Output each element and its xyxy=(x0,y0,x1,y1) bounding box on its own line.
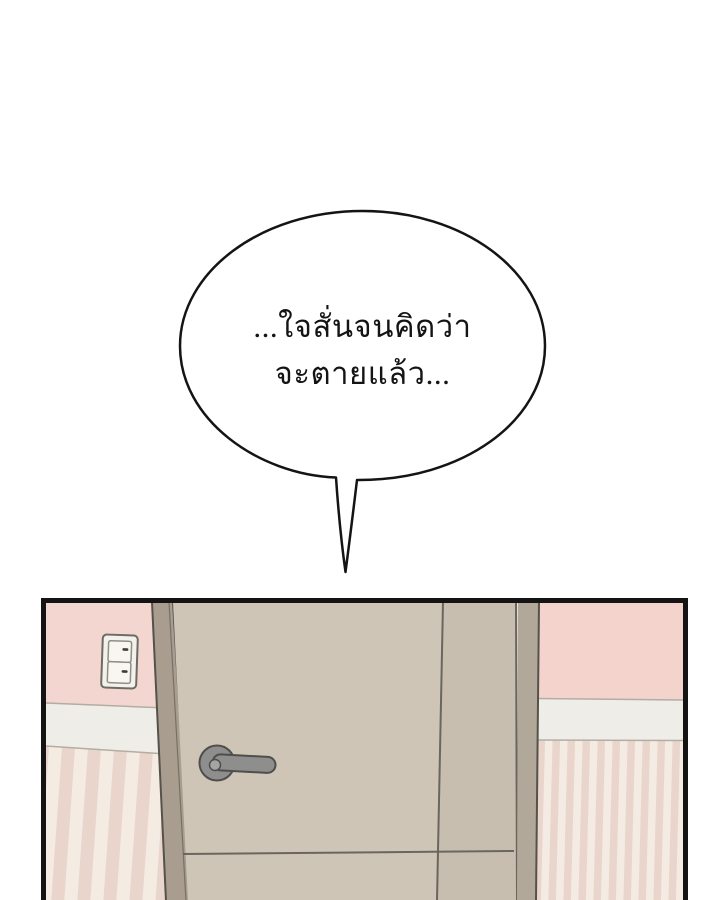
switch-dash-top xyxy=(122,648,128,651)
left-wall-wainscot-stripes xyxy=(46,746,166,900)
right-rail-bottom-line xyxy=(535,740,683,741)
switch-dash-bottom xyxy=(122,670,128,673)
switch-rocker-top xyxy=(108,641,132,663)
door-right-stile xyxy=(437,603,517,900)
left-wall-chair-rail xyxy=(46,703,166,754)
bubble-text-line-2: จะตายแล้ว... xyxy=(170,351,555,397)
bubble-text-line-1: ...ใจสั่นจนคิดว่า xyxy=(170,304,555,350)
comic-page: ...ใจสั่นจนคิดว่า จะตายแล้ว... xyxy=(0,0,720,900)
switch-rocker-bottom xyxy=(107,662,131,684)
speech-bubble: ...ใจสั่นจนคิดว่า จะตายแล้ว... xyxy=(170,200,555,585)
light-switch xyxy=(101,634,138,688)
right-wall-wainscot-stripes xyxy=(535,740,683,900)
door-handle-lever xyxy=(212,754,276,773)
door-handle-spindle xyxy=(210,760,221,771)
comic-panel xyxy=(41,598,688,900)
right-wall-chair-rail xyxy=(535,698,683,740)
panel-scene xyxy=(46,603,683,900)
door-right-edge-line xyxy=(516,603,517,900)
right-wall-pink xyxy=(534,603,683,700)
